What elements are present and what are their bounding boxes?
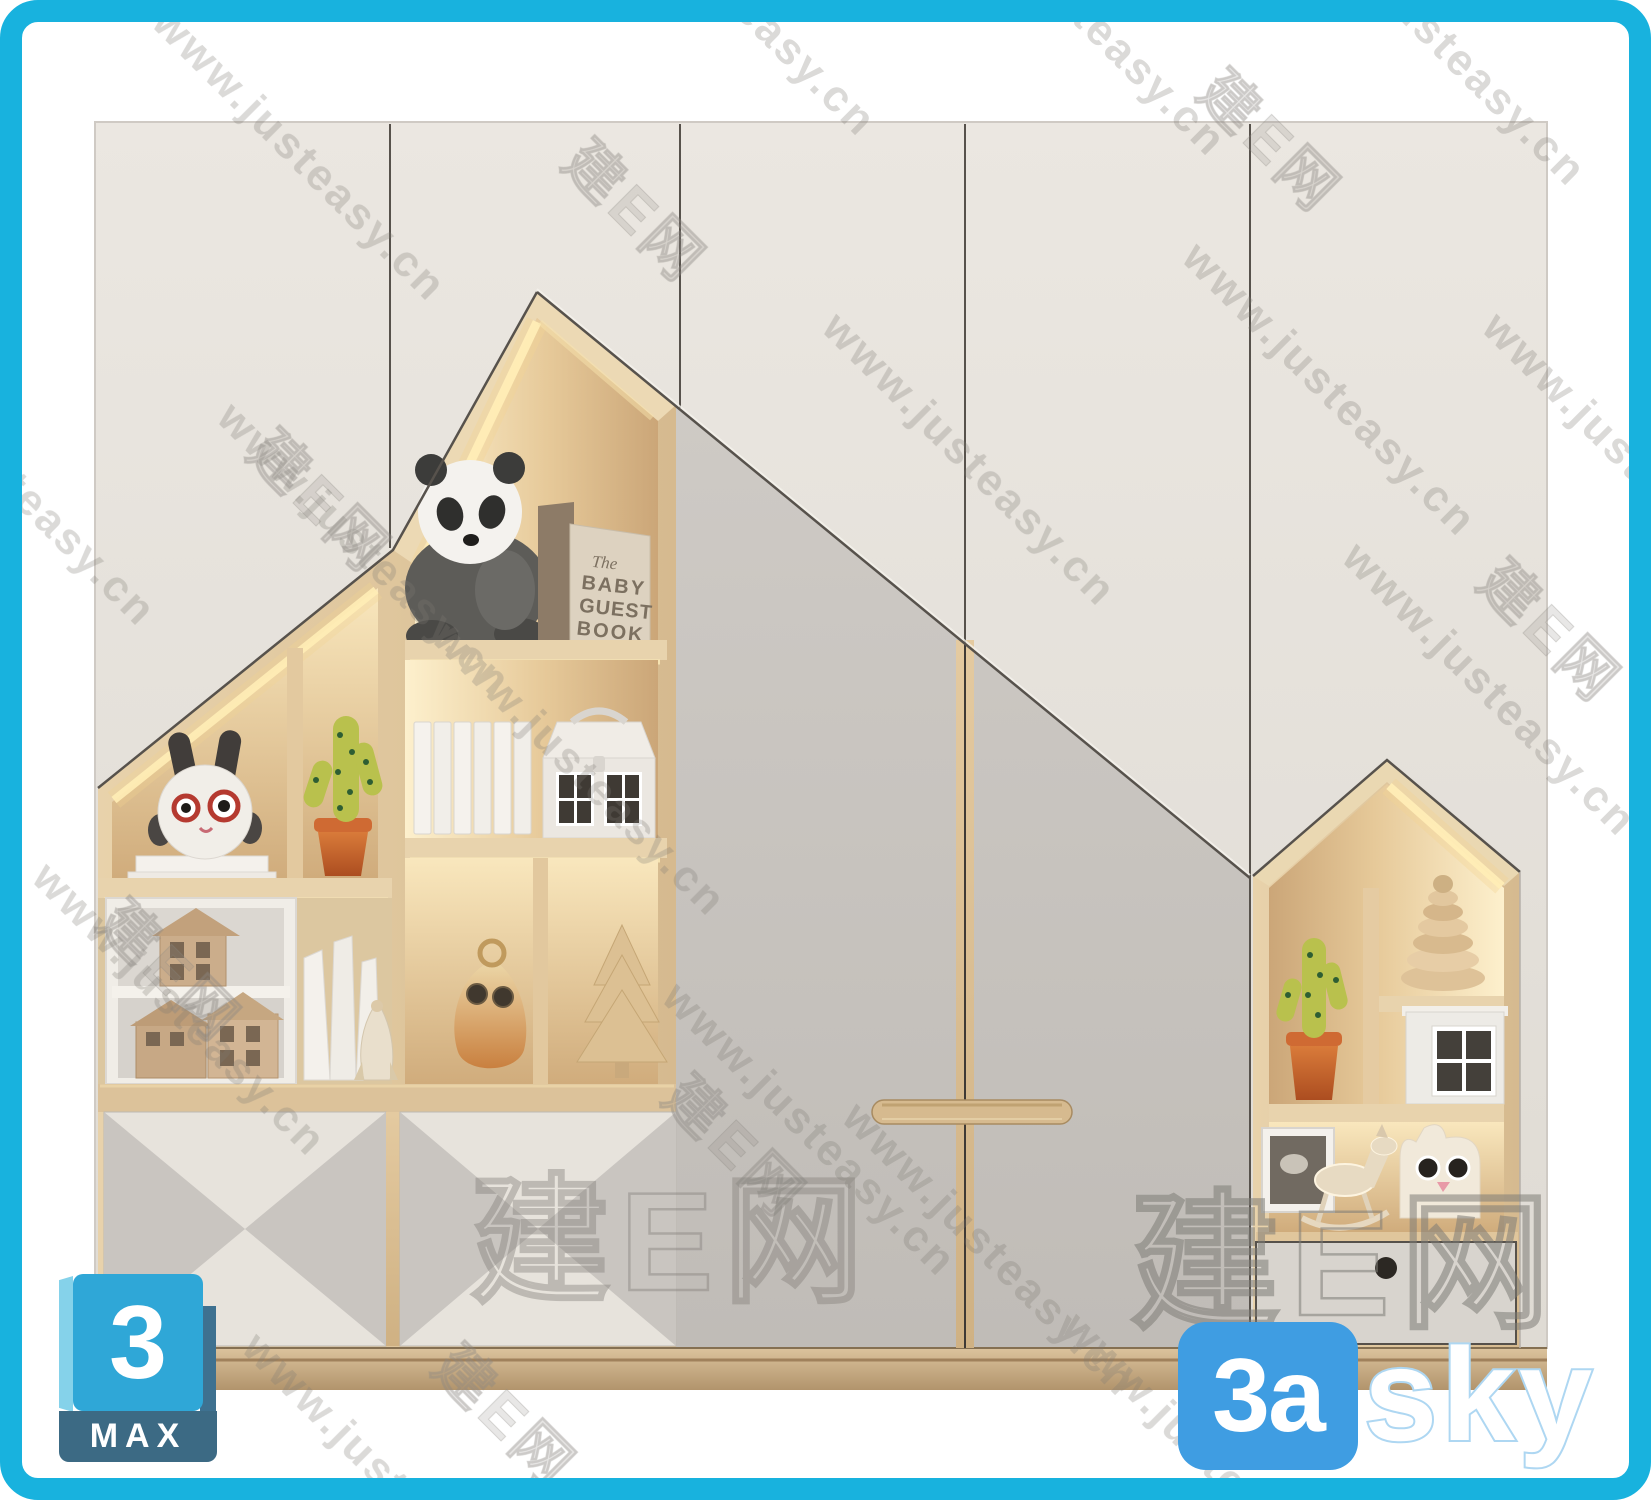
product-render-page: The BABY GUEST BOOK <box>0 0 1651 1500</box>
watermark-brand-large: 建E网 <box>470 1163 873 1320</box>
kids-wardrobe-render: The BABY GUEST BOOK <box>0 0 1651 1500</box>
logo-3a-tile: 3a <box>1178 1322 1358 1470</box>
badge-number: 3 <box>109 1291 167 1395</box>
logo-3a-text: 3a <box>1212 1337 1324 1456</box>
cubby-row <box>405 858 667 1084</box>
logo-sky-wordmark: sky <box>1340 1300 1651 1500</box>
small-house-box <box>1402 1006 1508 1104</box>
badge-max-bar: MAX <box>59 1411 217 1462</box>
badge-flap-panel <box>59 1276 73 1412</box>
logo-sky-text: sky <box>1364 1321 1596 1468</box>
badge-number-tile: 3 <box>73 1274 203 1411</box>
book-title-line1: The <box>591 552 619 574</box>
badge-max-label: MAX <box>90 1417 187 1456</box>
